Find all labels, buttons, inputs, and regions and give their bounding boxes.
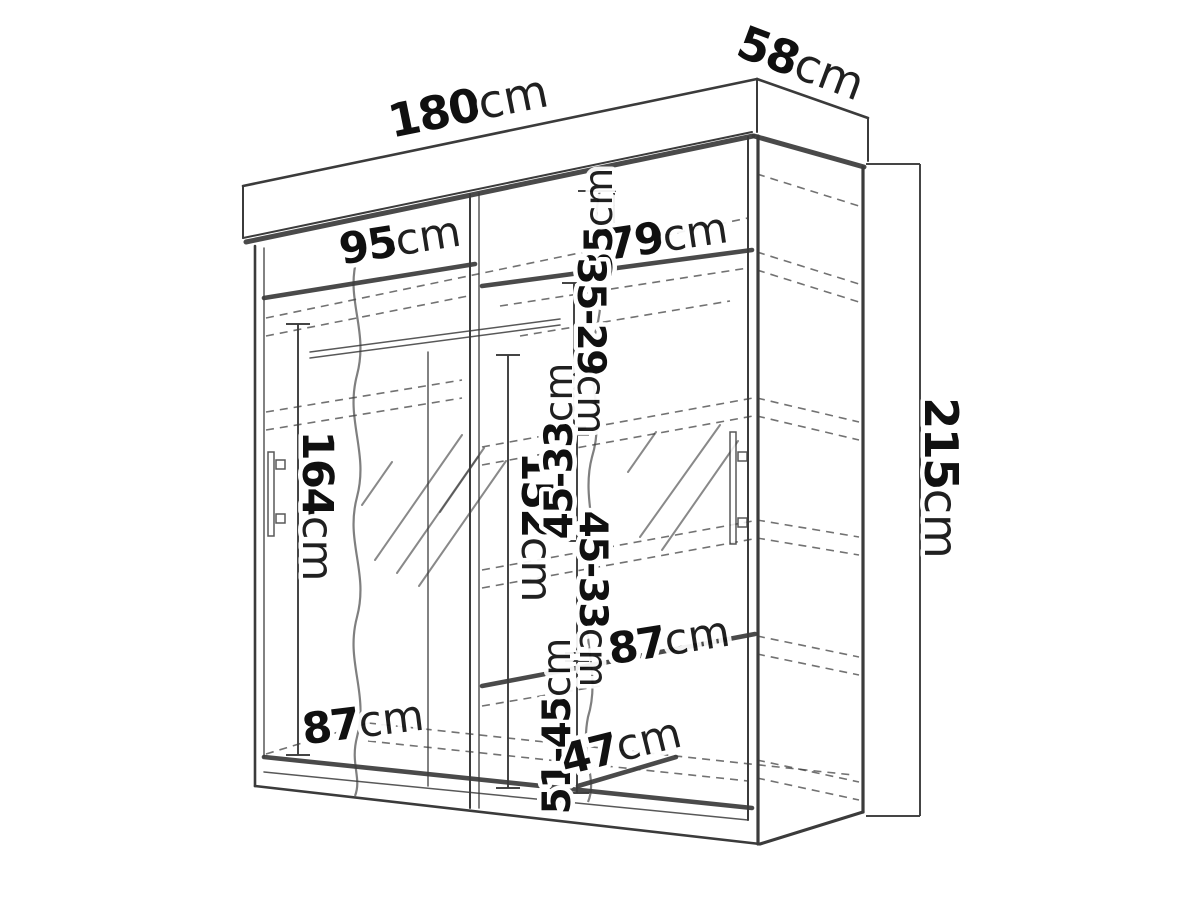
dim-shelf-width-right: 87cm: [605, 607, 734, 676]
cornice-outline: [243, 79, 868, 242]
dim-hanging-height-left: 164cm: [292, 431, 342, 582]
dim-gap-51-45: 51-45cm: [535, 638, 580, 815]
dim-overall-depth: 58cm: [730, 15, 872, 112]
wardrobe-diagram: 180cm 58cm 215cm 95cm 79cm 164cm 152cm 3…: [0, 0, 1200, 900]
left-door-handle: [268, 452, 285, 536]
dim-overall-width: 180cm: [383, 63, 552, 148]
dim-shelf-width-bottom-left: 87cm: [299, 691, 427, 756]
right-door-handle: [730, 432, 747, 544]
diagram-canvas: 180cm 58cm 215cm 95cm 79cm 164cm 152cm 3…: [0, 0, 1200, 900]
dimension-labels: 180cm 58cm 215cm 95cm 79cm 164cm 152cm 3…: [292, 15, 968, 815]
dim-top-shelf-right: 79cm: [603, 203, 731, 271]
dim-overall-height: 215cm: [914, 397, 968, 559]
